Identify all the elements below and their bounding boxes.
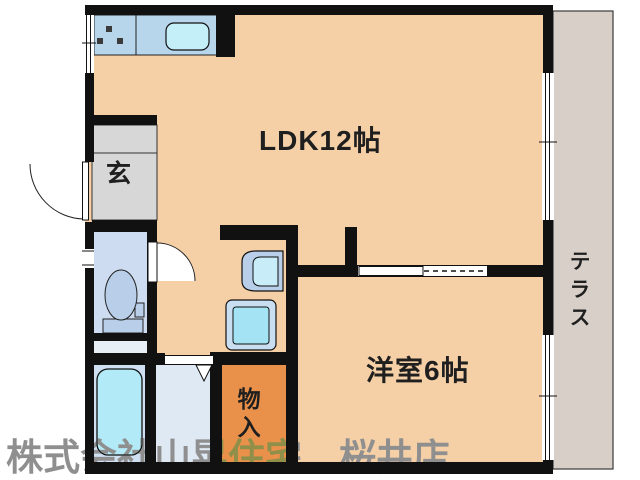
bathtub-icon — [97, 369, 142, 455]
washroom-floor — [156, 365, 210, 462]
wall-bottom — [85, 462, 553, 474]
wall-partition-stub — [345, 227, 357, 277]
wall-entrance-bottom — [92, 220, 157, 232]
washing-machine-icon — [233, 307, 269, 344]
wall-right-3 — [543, 460, 553, 474]
wall-top — [85, 5, 553, 15]
wall-bath-right — [145, 365, 156, 462]
wall-toilet-bottom — [85, 333, 157, 341]
wall-right-1 — [543, 5, 553, 73]
wall-hall-top — [220, 225, 298, 240]
wall-bath-top — [85, 353, 165, 365]
terrace-area — [553, 11, 613, 469]
entrance-area — [92, 125, 157, 220]
front-door-icon — [30, 162, 89, 220]
floor-plan-drawing — [0, 0, 640, 480]
washbasin-bowl — [253, 257, 278, 286]
wall-left-1 — [85, 5, 94, 15]
wall-right-2 — [543, 220, 553, 335]
toilet-window-icon — [82, 249, 94, 268]
kitchen-sink-icon — [166, 23, 209, 50]
storage-area — [222, 365, 286, 462]
floor-plan-page: LDK12帖 洋室6帖 玄 物入 テラス 株式会社山晃住宅 桜井店 — [0, 0, 640, 480]
wall-storage-top — [210, 352, 288, 365]
wall-entrance-top — [92, 115, 157, 125]
wall-storage-left — [210, 365, 222, 462]
wall-kitchen-stub — [216, 15, 235, 57]
kitchen-window-icon — [82, 15, 96, 73]
sliding-door-icon — [358, 266, 487, 276]
